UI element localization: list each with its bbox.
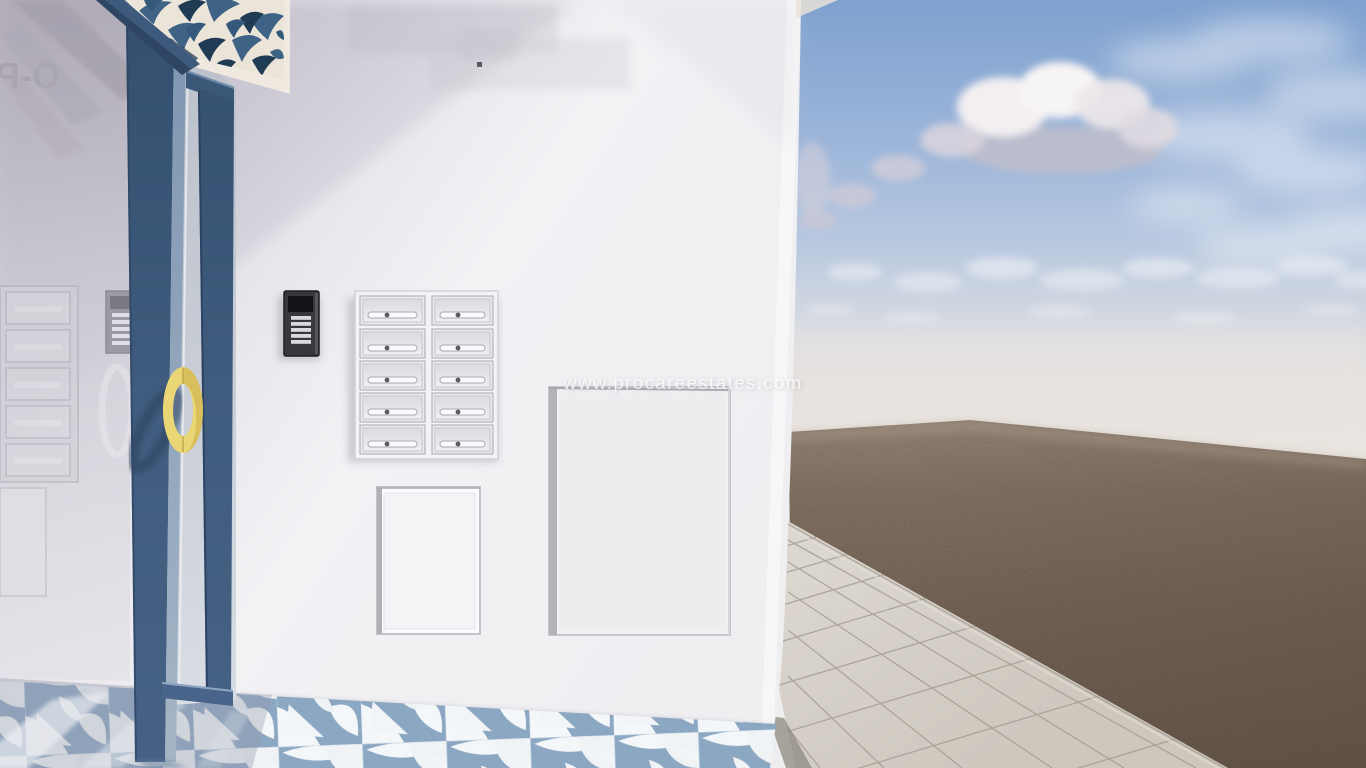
svg-text:www.procareestates.com: www.procareestates.com xyxy=(562,372,803,393)
